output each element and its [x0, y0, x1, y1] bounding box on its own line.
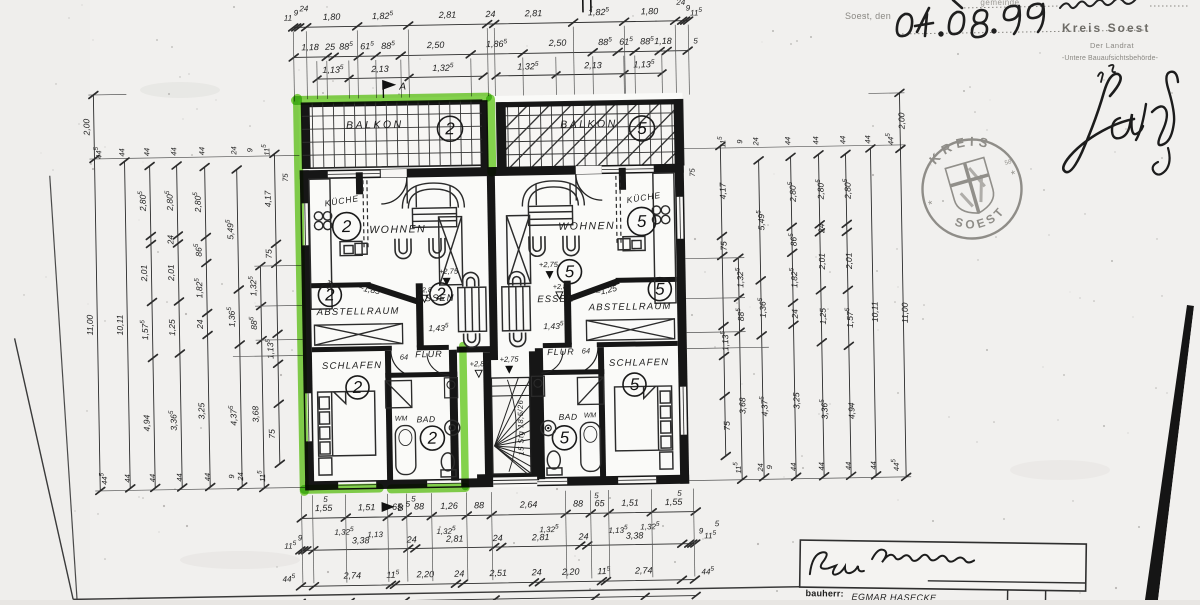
- svg-text:75: 75: [267, 429, 277, 439]
- svg-text:3,25: 3,25: [196, 403, 206, 420]
- svg-text:11: 11: [284, 13, 292, 22]
- svg-text:1,13: 1,13: [367, 530, 383, 539]
- svg-text:ABSTELLRAUM: ABSTELLRAUM: [316, 306, 400, 318]
- svg-text:24: 24: [675, 0, 686, 7]
- svg-text:Soest, den: Soest, den: [845, 11, 891, 21]
- svg-text:44: 44: [148, 474, 157, 482]
- svg-text:ESSEN: ESSEN: [537, 294, 574, 306]
- svg-text:10,11: 10,11: [115, 314, 125, 335]
- svg-text:+2,75: +2,75: [499, 355, 519, 364]
- svg-text:2: 2: [435, 284, 446, 303]
- svg-text:5: 5: [630, 375, 640, 394]
- svg-text:Kreis Soest: Kreis Soest: [1062, 21, 1150, 35]
- svg-text:3,25: 3,25: [791, 392, 801, 409]
- svg-text:5: 5: [637, 212, 647, 231]
- svg-text:24: 24: [298, 4, 309, 13]
- svg-text:44: 44: [817, 462, 826, 470]
- svg-text:1,18: 1,18: [654, 36, 672, 46]
- svg-text:88: 88: [474, 500, 484, 510]
- svg-text:11,00: 11,00: [900, 302, 910, 323]
- svg-text:A: A: [398, 82, 406, 93]
- svg-text:FLUR: FLUR: [547, 347, 575, 357]
- svg-text:+2,8: +2,8: [418, 287, 432, 294]
- svg-text:1,26: 1,26: [440, 501, 458, 511]
- svg-text:2,01: 2,01: [817, 253, 827, 271]
- svg-text:9: 9: [294, 8, 299, 17]
- svg-text:ABSTELLRAUM: ABSTELLRAUM: [588, 301, 672, 313]
- svg-text:1,80: 1,80: [323, 12, 341, 22]
- svg-text:44: 44: [811, 136, 820, 144]
- svg-text:2,00: 2,00: [896, 112, 906, 130]
- svg-text:1,51: 1,51: [621, 498, 639, 508]
- svg-text:BALKON: BALKON: [560, 118, 618, 131]
- svg-text:WOHNEN: WOHNEN: [558, 220, 615, 233]
- svg-text:44: 44: [123, 474, 132, 482]
- svg-text:2,01: 2,01: [844, 252, 854, 270]
- svg-text:44: 44: [863, 135, 872, 143]
- svg-text:1,18: 1,18: [301, 42, 319, 52]
- svg-text:24: 24: [165, 235, 175, 246]
- svg-text:44: 44: [169, 147, 178, 155]
- svg-text:BALKON: BALKON: [346, 119, 404, 132]
- svg-text:WOHNEN: WOHNEN: [369, 223, 426, 236]
- svg-text:25: 25: [324, 42, 336, 52]
- svg-text:+2,75: +2,75: [439, 267, 459, 276]
- svg-text:4,94: 4,94: [141, 414, 151, 431]
- svg-text:2,20: 2,20: [415, 569, 434, 579]
- svg-text:B: B: [398, 503, 404, 513]
- svg-text:24: 24: [484, 9, 495, 19]
- svg-text:5: 5: [637, 119, 647, 138]
- svg-text:24: 24: [531, 567, 542, 577]
- svg-text:44: 44: [869, 461, 878, 469]
- svg-text:24: 24: [492, 533, 503, 543]
- svg-text:44: 44: [117, 148, 126, 156]
- svg-text:44: 44: [838, 136, 847, 144]
- svg-text:SCHLAFEN: SCHLAFEN: [322, 360, 382, 372]
- svg-text:44: 44: [142, 148, 151, 156]
- svg-text:2,20: 2,20: [561, 567, 580, 577]
- svg-text:BAD: BAD: [558, 412, 577, 422]
- svg-text:2,50: 2,50: [426, 40, 445, 50]
- svg-text:75: 75: [722, 421, 732, 431]
- svg-text:75: 75: [719, 241, 729, 251]
- svg-text:2,01: 2,01: [166, 264, 176, 282]
- svg-text:4,94: 4,94: [846, 402, 856, 419]
- svg-text:5: 5: [677, 489, 682, 498]
- svg-text:44: 44: [789, 463, 798, 471]
- svg-text:1,25: 1,25: [818, 308, 828, 325]
- svg-text:1,25: 1,25: [167, 319, 177, 336]
- svg-text:44: 44: [203, 473, 212, 481]
- svg-text:24: 24: [790, 309, 800, 320]
- svg-text:4,17: 4,17: [717, 182, 727, 199]
- svg-text:11,00: 11,00: [85, 314, 95, 335]
- svg-text:44: 44: [197, 147, 206, 155]
- svg-text:75: 75: [264, 249, 274, 259]
- svg-text:44: 44: [175, 473, 184, 481]
- svg-text:+2,8: +2,8: [553, 284, 567, 291]
- svg-text:FLUR: FLUR: [415, 349, 443, 359]
- svg-text:2,13: 2,13: [583, 60, 602, 70]
- svg-text:bauherr:: bauherr:: [806, 588, 844, 599]
- svg-text:2,13: 2,13: [370, 64, 389, 74]
- svg-text:3,68: 3,68: [737, 397, 747, 414]
- svg-text:75: 75: [688, 167, 697, 176]
- svg-text:24: 24: [453, 569, 464, 579]
- svg-text:2: 2: [341, 217, 352, 236]
- svg-text:2: 2: [427, 429, 438, 448]
- svg-text:1,55: 1,55: [315, 503, 334, 513]
- svg-text:2,00: 2,00: [81, 118, 91, 136]
- svg-text:WM: WM: [395, 416, 408, 423]
- svg-text:24: 24: [236, 472, 245, 481]
- svg-text:+2,87: +2,87: [470, 359, 490, 368]
- svg-text:1,55: 1,55: [665, 497, 684, 507]
- svg-text:+2,75: +2,75: [539, 260, 559, 269]
- svg-text:2: 2: [352, 378, 363, 397]
- svg-text:24: 24: [751, 137, 760, 146]
- svg-text:64: 64: [582, 346, 590, 355]
- svg-text:2,81: 2,81: [438, 10, 457, 20]
- svg-text:5: 5: [594, 491, 599, 500]
- svg-text:2,01: 2,01: [139, 264, 149, 282]
- svg-text:-Untere Bauaufsichtsbehörde-: -Untere Bauaufsichtsbehörde-: [1062, 55, 1159, 62]
- svg-text:2,74: 2,74: [342, 570, 361, 580]
- svg-text:3,38: 3,38: [626, 530, 644, 540]
- svg-text:5: 5: [715, 519, 720, 528]
- svg-text:5: 5: [565, 262, 575, 281]
- svg-text:24: 24: [816, 223, 826, 234]
- svg-text:WM: WM: [584, 412, 597, 419]
- svg-text:2,51: 2,51: [488, 568, 507, 578]
- svg-text:44: 44: [783, 137, 792, 145]
- svg-text:5: 5: [693, 36, 698, 45]
- svg-text:2,81: 2,81: [524, 8, 543, 18]
- svg-text:24: 24: [229, 146, 238, 155]
- svg-text:64: 64: [400, 353, 408, 362]
- svg-text:2,74: 2,74: [634, 565, 653, 575]
- svg-text:10,11: 10,11: [870, 301, 880, 322]
- svg-text:5: 5: [655, 280, 665, 299]
- svg-text:5: 5: [323, 495, 328, 504]
- svg-text:2,64: 2,64: [519, 499, 538, 509]
- svg-text:15 Stg 18,5/26: 15 Stg 18,5/26: [516, 399, 526, 455]
- svg-text:3,68: 3,68: [250, 406, 260, 423]
- svg-text:4,17: 4,17: [263, 190, 273, 207]
- svg-text:5: 5: [405, 500, 410, 509]
- svg-text:24: 24: [578, 531, 589, 541]
- svg-text:2: 2: [444, 119, 455, 138]
- svg-text:gemeinde: gemeinde: [980, 0, 1019, 7]
- svg-text:1,80: 1,80: [641, 6, 659, 16]
- svg-text:5: 5: [411, 494, 416, 503]
- svg-text:24: 24: [195, 319, 205, 330]
- svg-text:44: 44: [844, 462, 853, 470]
- svg-text:1,51: 1,51: [358, 502, 376, 512]
- svg-text:EGMAR HASECKE: EGMAR HASECKE: [851, 592, 937, 600]
- svg-text:Der Landrat: Der Landrat: [1090, 41, 1135, 50]
- svg-text:24: 24: [756, 463, 765, 472]
- svg-text:75: 75: [281, 173, 290, 182]
- svg-text:SCHLAFEN: SCHLAFEN: [609, 357, 669, 369]
- svg-text:BAD: BAD: [416, 414, 435, 424]
- svg-text:2,50: 2,50: [548, 38, 567, 48]
- svg-text:88: 88: [573, 498, 583, 508]
- svg-text:5: 5: [560, 428, 570, 447]
